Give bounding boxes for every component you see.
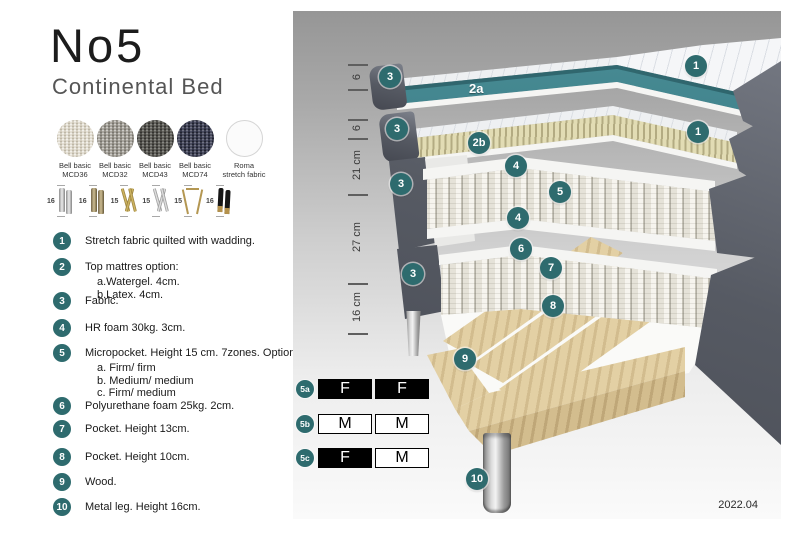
feature-number-badge: 3 [53,292,71,310]
feature-text: Metal leg. Height 16cm. [85,498,201,516]
version-label: 2022.04 [718,499,758,511]
list-item: 9 Wood. [53,473,117,491]
page: No5 Continental Bed Bell basicMCD36 Bell… [0,0,800,533]
firmness-badge: 5c [296,449,314,467]
callout-9[interactable]: 9 [454,348,476,370]
callout-1-top[interactable]: 1 [685,55,707,77]
callout-7[interactable]: 7 [540,257,562,279]
feature-number-badge: 2 [53,258,71,276]
firmness-cell: M [318,414,372,434]
ruler-label-16cm: 16 cm [351,289,363,325]
feature-text: Micropocket. Height 15 cm. 7zones. Optio… [85,347,298,359]
list-item: 1 Stretch fabric quilted with wadding. [53,232,255,250]
feature-number-badge: 1 [53,232,71,250]
feature-number-badge: 10 [53,498,71,516]
feature-text: Pocket. Height 10cm. [85,448,190,466]
callout-3-second[interactable]: 3 [386,118,408,140]
feature-number-badge: 7 [53,420,71,438]
feature-subitem: a.Watergel. 4cm. [97,276,180,289]
list-item: 8 Pocket. Height 10cm. [53,448,190,466]
feature-text: Wood. [85,473,117,491]
ruler-label-21cm: 21 cm [351,147,363,183]
ruler-tick [348,194,368,196]
feature-number-badge: 8 [53,448,71,466]
firmness-cell: F [318,379,372,399]
feature-number-badge: 6 [53,397,71,415]
callout-10[interactable]: 10 [466,468,488,490]
firmness-row-5c: 5c F M [296,448,432,468]
callout-8[interactable]: 8 [542,295,564,317]
feature-text: Stretch fabric quilted with wadding. [85,232,255,250]
ruler-tick [348,333,368,335]
callout-5[interactable]: 5 [549,181,571,203]
list-item: 3 Fabric. [53,292,119,310]
feature-text: Top mattres option: [85,261,179,273]
list-item: 6 Polyurethane foam 25kg. 2cm. [53,397,234,415]
feature-text: Fabric. [85,292,119,310]
ruler-label-27cm: 27 cm [351,219,363,255]
ruler-label-6-mid: 6 [351,110,363,146]
feature-list: 1 Stretch fabric quilted with wadding. 2… [0,0,300,533]
feature-text: Pocket. Height 13cm. [85,420,190,438]
callout-4-upper[interactable]: 4 [505,155,527,177]
callout-1-second[interactable]: 1 [687,121,709,143]
firmness-badge: 5b [296,415,314,433]
feature-subitem: a. Firm/ firm [97,362,298,375]
firmness-badge: 5a [296,380,314,398]
callout-3-top[interactable]: 3 [379,66,401,88]
ruler-tick [348,283,368,285]
callout-3-fourth[interactable]: 3 [402,263,424,285]
list-item: 10 Metal leg. Height 16cm. [53,498,201,516]
metal-leg [483,433,511,513]
firmness-row-5a: 5a F F [296,379,432,399]
label-2a[interactable]: 2a [469,81,483,96]
feature-number-badge: 5 [53,344,71,362]
firmness-cell: M [375,448,429,468]
feature-text: Polyurethane foam 25kg. 2cm. [85,397,234,415]
ruler-label-6-top: 6 [351,59,363,95]
list-item: 4 HR foam 30kg. 3cm. [53,319,185,337]
front-left-metal-leg [405,311,422,356]
feature-text: HR foam 30kg. 3cm. [85,319,185,337]
feature-number-badge: 9 [53,473,71,491]
callout-2b[interactable]: 2b [468,132,490,154]
list-item: 5 Micropocket. Height 15 cm. 7zones. Opt… [53,344,298,400]
firmness-row-5b: 5b M M [296,414,432,434]
callout-6[interactable]: 6 [510,238,532,260]
list-item: 7 Pocket. Height 13cm. [53,420,190,438]
firmness-cell: M [375,414,429,434]
firmness-cell: F [318,448,372,468]
callout-4-lower[interactable]: 4 [507,207,529,229]
feature-subitem: b. Medium/ medium [97,375,298,388]
firmness-cell: F [375,379,429,399]
bed-cutaway-diagram: 6 6 21 cm 27 cm 16 cm 1 3 2a 1 3 2b 4 3 … [293,11,781,519]
feature-number-badge: 4 [53,319,71,337]
callout-3-third[interactable]: 3 [390,173,412,195]
